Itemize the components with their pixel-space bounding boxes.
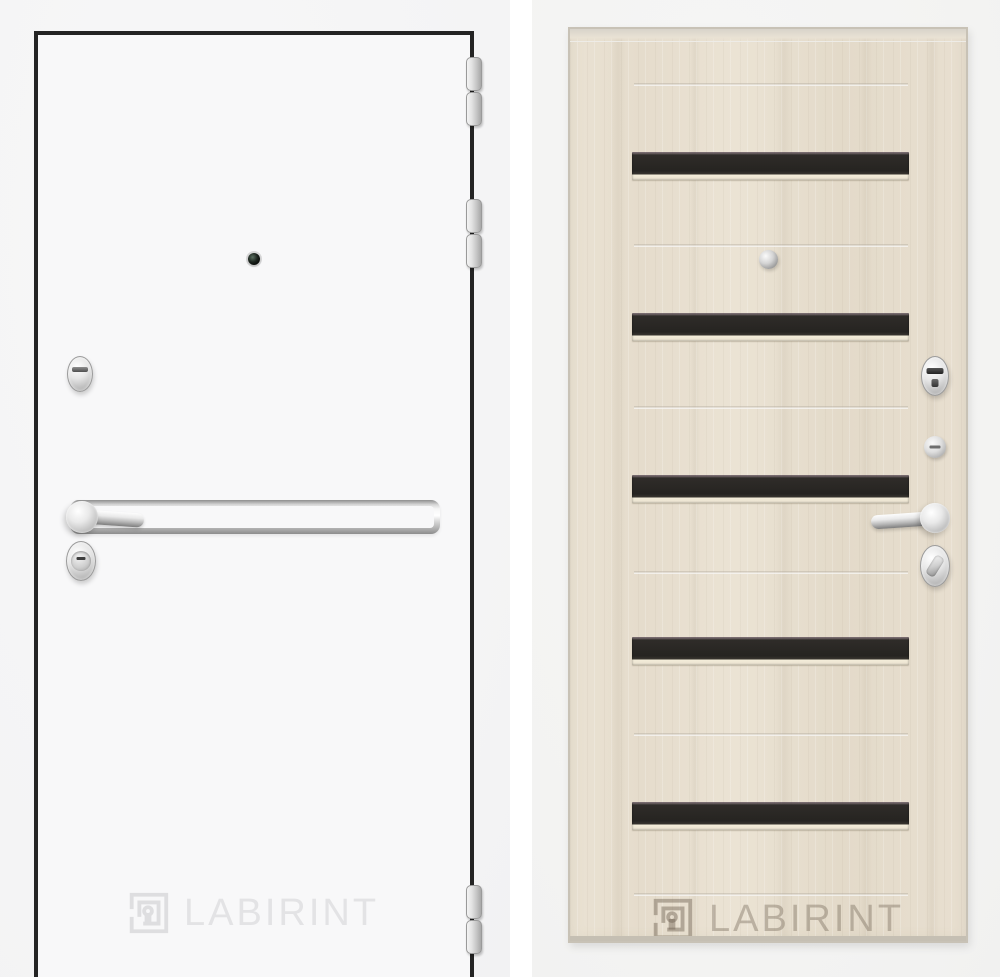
glass-insert-stripe (632, 313, 909, 341)
panel-groove (634, 83, 908, 86)
cylinder-lock (66, 541, 96, 581)
door-handle-rosette (66, 501, 98, 533)
keyhole-pin (932, 379, 939, 387)
glass-insert-stripe (632, 637, 909, 665)
glass-insert-stripe (632, 152, 909, 180)
left-door-photo: LABIRINT (0, 0, 510, 977)
panel-groove (634, 406, 908, 409)
labirint-watermark-text: LABIRINT (709, 900, 904, 938)
thumbturn-bar (72, 367, 88, 372)
peephole (248, 253, 260, 265)
panel-bottom-edge (570, 936, 966, 941)
door-hinge (466, 57, 482, 91)
keyhole-slot (927, 368, 944, 374)
door-hinge (466, 920, 482, 954)
panel-groove (634, 571, 908, 574)
wood-grain-streak (610, 29, 626, 941)
oak-door-panel: LABIRINT (568, 27, 968, 943)
peephole (759, 250, 778, 269)
wood-grain-streak (925, 29, 939, 941)
knob-slot (930, 446, 941, 449)
glass-insert-stripe (632, 802, 909, 830)
thumbturn-lock (67, 356, 93, 392)
labirint-watermark: LABIRINT (124, 888, 379, 938)
door-hinge (466, 234, 482, 268)
oval-thumbturn (920, 545, 950, 587)
glass-insert-stripe (632, 475, 909, 503)
panel-groove (634, 733, 908, 736)
labirint-watermark-text: LABIRINT (184, 894, 379, 932)
panel-top-sheen (570, 29, 966, 42)
panel-groove (634, 244, 908, 247)
night-latch-knob (924, 436, 946, 458)
door-handle-rosette (920, 503, 950, 533)
escutcheon-lock (921, 356, 949, 396)
door-hinge (466, 885, 482, 919)
cylinder-face (71, 551, 91, 571)
door-hinge (466, 92, 482, 126)
door-product-image: LABIRINT (0, 0, 1000, 977)
keyhole (77, 557, 86, 560)
labirint-maze-icon (124, 888, 172, 938)
right-door-photo: LABIRINT (532, 0, 1000, 977)
door-hinge (466, 199, 482, 233)
thumbturn-lever (925, 554, 945, 578)
